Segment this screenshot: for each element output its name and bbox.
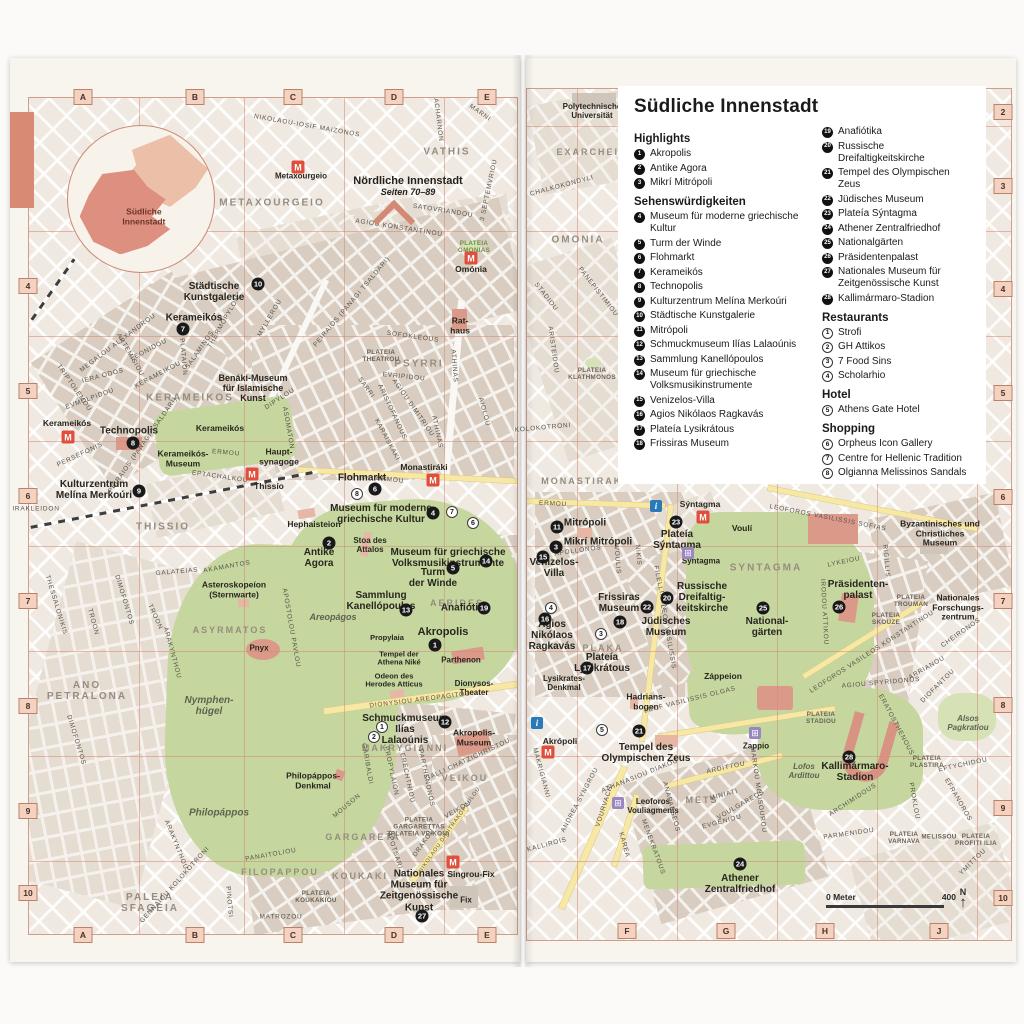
legend-item-label: Athener Zentralfriedhof: [838, 223, 940, 235]
legend-item-marker: 19: [822, 127, 833, 138]
legend-section-header: Shopping: [822, 423, 970, 435]
legend-item-marker: 2: [822, 342, 833, 353]
legend-item-label: Kallimármaro-Stadion: [838, 293, 934, 305]
legend-item-label: Plateía Lysikrátous: [650, 424, 734, 436]
legend-column-2: 19Anafiótika20Russische Dreifaltigkeitsk…: [822, 126, 970, 482]
suburban-rail-icon: ⊞: [682, 547, 694, 559]
metro-icon: M: [697, 511, 710, 524]
legend-item-marker: 6: [822, 439, 833, 450]
map-poi-label: Kerameikós: [43, 419, 91, 429]
map-poi-label: Singrou-Fix: [447, 870, 494, 880]
legend-item: 17Plateía Lysikrátous: [634, 424, 810, 436]
legend-item-label: Scholarhio: [838, 370, 885, 382]
metro-icon: M: [427, 474, 440, 487]
map-poi-label: Polytechnische Universität: [563, 103, 622, 121]
legend-section-header: Hotel: [822, 389, 970, 401]
sight-marker: 23: [670, 516, 683, 529]
map-poi-label: Fix: [460, 897, 472, 906]
map-poi-label: Voulí: [732, 524, 752, 534]
map-area-label: METAXOURGEIO: [219, 197, 324, 208]
legend-item: 12Schmuckmuseum Ilías Lalaoúnis: [634, 339, 810, 351]
grid-chip: 10: [994, 890, 1013, 906]
sight-marker: 8: [127, 437, 140, 450]
sight-marker: 14: [480, 555, 493, 568]
grid-chip: 6: [19, 488, 38, 504]
grid-chip: 7: [19, 593, 38, 609]
legend-item: 21Tempel des Olympischen Zeus: [822, 167, 970, 191]
legend-item-label: Schmuckmuseum Ilías Lalaoúnis: [650, 339, 796, 351]
map-poi-label: Byzantinisches und Christliches Museum: [898, 520, 982, 549]
map-area-label: MONASTIRAKI: [541, 476, 627, 486]
map-poi-label: Mitrópoli: [564, 517, 606, 528]
map-poi-label: Pnyx: [249, 645, 268, 654]
grid-chip: 9: [19, 803, 38, 819]
map-poi-label: Antike Agora: [304, 547, 335, 569]
legend-item-label: Nationalgärten: [838, 237, 903, 249]
legend-item: 7Centre for Hellenic Tradition: [822, 453, 970, 465]
map-plaza-label: PLATEIA PROFITI ILIA: [955, 833, 997, 847]
legend-item-label: Mikrí Mitrópoli: [650, 177, 712, 189]
venue-marker: 2: [368, 731, 380, 743]
map-poi-label: Akropolis- Museum: [453, 728, 495, 747]
legend-item-label: Orpheus Icon Gallery: [838, 438, 933, 450]
legend-column-1: Highlights1Akropolis2Antike Agora3Mikrí …: [634, 126, 810, 482]
grid-chip: 8: [994, 697, 1013, 713]
sight-marker: 28: [843, 751, 856, 764]
legend-item: 18Frissiras Museum: [634, 438, 810, 450]
legend-item-marker: 25: [822, 238, 833, 249]
legend-item-label: Kerameikós: [650, 267, 703, 279]
map-area-label: SYNTAGMA: [730, 562, 802, 573]
legend-item-marker: 13: [634, 355, 645, 366]
grid-chip: D: [385, 89, 404, 105]
sight-marker: 7: [177, 323, 190, 336]
sight-marker: 4: [427, 507, 440, 520]
legend-item-label: 7 Food Sins: [838, 356, 891, 368]
map-poi-label: Kallimármaro- Stadion: [821, 761, 888, 783]
sight-marker: 24: [734, 858, 747, 871]
grid-chip: E: [478, 927, 497, 943]
map-poi-label: Philopáppos- Denkmal: [286, 771, 340, 790]
legend-item-label: Centre for Hellenic Tradition: [838, 453, 962, 465]
legend-item-marker: 3: [634, 178, 645, 189]
legend-item-marker: 7: [822, 454, 833, 465]
map-plaza-label: PLATEIA TROUMAN: [894, 594, 928, 608]
map-area-label: EXARCHEIA: [556, 147, 627, 157]
sight-marker: 1: [429, 639, 442, 652]
legend-item-marker: 6: [634, 253, 645, 264]
map-poi-label: National- gärten: [746, 616, 789, 638]
scale-bar-line: [826, 905, 944, 908]
grid-chip: 9: [994, 800, 1013, 816]
inset-locator: Südliche Innenstadt: [67, 125, 215, 273]
north-page-title: Nördliche Innenstadt: [353, 175, 462, 187]
suburban-rail-icon: ⊞: [749, 727, 761, 739]
north-arrow-icon: ↑: [959, 897, 967, 909]
legend-item-marker: 5: [634, 239, 645, 250]
grid-chip: D: [385, 927, 404, 943]
legend-item-label: Plateía Sýntagma: [838, 208, 917, 220]
sight-marker: 22: [641, 601, 654, 614]
legend-item-label: Tempel des Olympischen Zeus: [838, 167, 970, 191]
map-area-label: PSYRRI: [394, 358, 443, 369]
inset-label: Südliche Innenstadt: [122, 206, 165, 227]
legend-item: 37 Food Sins: [822, 356, 970, 368]
sight-marker: 5: [447, 562, 460, 575]
grid-chip: 5: [994, 385, 1013, 401]
venue-marker: 4: [545, 602, 557, 614]
venue-marker: 6: [467, 517, 479, 529]
legend-item-label: Sammlung Kanellópoulos: [650, 354, 763, 366]
legend-item-label: Antike Agora: [650, 163, 707, 175]
venue-marker: 7: [446, 506, 458, 518]
grid-chip: F: [618, 923, 637, 939]
map-plaza-label: PLATEIA GARGARETTAS (PLATEIA VEIKOU): [388, 816, 449, 837]
map-plaza-label: PLATEIA THEATROU: [363, 349, 400, 363]
map-poi-label: Záppeion: [704, 672, 742, 682]
legend-item-marker: 1: [822, 328, 833, 339]
legend-item-marker: 20: [822, 142, 833, 153]
sight-marker: 6: [369, 483, 382, 496]
map-plaza-label: PLATEIA KOUKAKIOU: [295, 890, 337, 904]
legend-item: 9Kulturzentrum Melína Merkoúri: [634, 296, 810, 308]
legend-panel: Südliche Innenstadt Highlights1Akropolis…: [618, 86, 986, 484]
sight-marker: 18: [614, 616, 627, 629]
legend-item-label: Anafiótika: [838, 126, 882, 138]
legend-item: 7Kerameikós: [634, 267, 810, 279]
map-terrain-label: Alsos Pagkratiou: [947, 715, 988, 733]
legend-item-label: Frissiras Museum: [650, 438, 729, 450]
grid-chip: 6: [994, 489, 1013, 505]
map-street-label: IRAKLEIDON: [12, 505, 59, 512]
sight-marker: 9: [133, 485, 146, 498]
map-area-label: VEIKOU: [442, 773, 489, 783]
legend-item-label: Strofi: [838, 327, 861, 339]
legend-item-marker: 3: [822, 357, 833, 368]
legend-item: 6Orpheus Icon Gallery: [822, 438, 970, 450]
legend-item-marker: 27: [822, 267, 833, 278]
map-poi-label: Haupt- synagoge: [259, 447, 299, 466]
legend-item: 15Venizelos-Villa: [634, 395, 810, 407]
legend-item: 3Mikrí Mitrópoli: [634, 177, 810, 189]
legend-item: 25Nationalgärten: [822, 237, 970, 249]
legend-item: 19Anafiótika: [822, 126, 970, 138]
north-page-pointer: Nördliche Innenstadt Seiten 70–89: [353, 175, 462, 197]
metro-icon: M: [542, 746, 555, 759]
map-poi-label: Metaxourgeio: [275, 173, 327, 182]
legend-item: 8Olgianna Melissinos Sandals: [822, 467, 970, 479]
venue-marker: 3: [595, 628, 607, 640]
map-poi-label: Russische Dreifaltig- keitskirche: [676, 581, 728, 615]
grid-chip: 8: [19, 698, 38, 714]
legend-item-label: Flohmarkt: [650, 252, 694, 264]
legend-item: 1Akropolis: [634, 148, 810, 160]
legend-item-marker: 2: [634, 164, 645, 175]
scale-zero: 0 Meter: [826, 892, 856, 902]
grid-chip: A: [74, 89, 93, 105]
map-plaza-label: PLATEIA SKOUZE: [872, 612, 901, 626]
map-poi-label: Lysikrates- Denkmal: [543, 675, 585, 693]
map-poi-label: Parthenon: [441, 657, 481, 666]
map-plaza-label: PLATEIA VARNAVA: [888, 831, 920, 845]
grid-chip: 5: [19, 383, 38, 399]
map-poi-label: Kerameikós: [196, 424, 244, 434]
map-plaza-label: PLATEIA STADIOU: [806, 711, 836, 725]
map-poi-label: Omónia: [455, 265, 487, 275]
grid-chip: E: [478, 89, 497, 105]
map-street-label: MATROZOU: [259, 913, 302, 920]
legend-item-marker: 15: [634, 396, 645, 407]
sight-marker: 20: [661, 592, 674, 605]
legend-item: 4Scholarhio: [822, 370, 970, 382]
legend-section-header: Highlights: [634, 133, 810, 145]
sight-marker: 19: [478, 602, 491, 615]
grid-chip: 3: [994, 178, 1013, 194]
legend-item-marker: 8: [822, 468, 833, 479]
sight-marker: 27: [416, 910, 429, 923]
metro-icon: M: [62, 431, 75, 444]
legend-item-marker: 11: [634, 326, 645, 337]
legend-item: 4Museum für moderne griechische Kultur: [634, 211, 810, 235]
legend-item-marker: 26: [822, 253, 833, 264]
legend-item: 13Sammlung Kanellópoulos: [634, 354, 810, 366]
map-poi-label: Monastiráki: [400, 463, 447, 473]
legend-item-marker: 4: [822, 371, 833, 382]
metro-icon: M: [246, 468, 259, 481]
legend-item: 2GH Attikos: [822, 341, 970, 353]
legend-item: 6Flohmarkt: [634, 252, 810, 264]
map-poi-label: Thissío: [254, 482, 284, 492]
legend-item-label: Turm der Winde: [650, 238, 721, 250]
map-poi-label: Museum für moderne griechische Kultur: [330, 503, 432, 525]
grid-chip: B: [186, 89, 205, 105]
grid-chip: 7: [994, 593, 1013, 609]
legend-item: 5Athens Gate Hotel: [822, 404, 970, 416]
legend-item-marker: 24: [822, 224, 833, 235]
legend-item-marker: 5: [822, 405, 833, 416]
legend-item-label: GH Attikos: [838, 341, 885, 353]
legend-item-marker: 7: [634, 268, 645, 279]
grid-chip: 10: [19, 885, 38, 901]
legend-item-label: Jüdisches Museum: [838, 194, 924, 206]
legend-item-label: Technopolis: [650, 281, 703, 293]
map-plaza-label: PLATEIA KLATHMONOS: [568, 367, 616, 381]
legend-item-marker: 21: [822, 168, 833, 179]
legend-item-label: Akropolis: [650, 148, 691, 160]
map-area-label: FILOPAPPOU: [241, 867, 319, 877]
map-poi-label: Athener Zentralfriedhof: [705, 873, 776, 895]
map-poi-label: Frissiras Museum: [598, 592, 640, 614]
grid-chip: C: [284, 927, 303, 943]
legend-item-label: Athens Gate Hotel: [838, 404, 920, 416]
metro-icon: M: [292, 161, 305, 174]
legend-item-marker: 22: [822, 195, 833, 206]
legend-item-marker: 16: [634, 410, 645, 421]
legend-section-header: Sehenswürdigkeiten: [634, 196, 810, 208]
legend-item-label: Mitrópoli: [650, 325, 688, 337]
legend-item: 8Technopolis: [634, 281, 810, 293]
legend-item-marker: 23: [822, 209, 833, 220]
map-poi-label: Hephaisteion: [287, 520, 340, 530]
sight-marker: 21: [633, 725, 646, 738]
map-poi-label: Rat- haus: [450, 316, 470, 335]
map-terrain-label: Nymphen- hügel: [185, 695, 234, 717]
legend-item: 20Russische Dreifaltigkeitskirche: [822, 141, 970, 165]
venue-marker: 5: [596, 724, 608, 736]
legend-item: 2Antike Agora: [634, 163, 810, 175]
sight-marker: 26: [833, 601, 846, 614]
legend-item-marker: 1: [634, 149, 645, 160]
grid-chip: B: [186, 927, 205, 943]
legend-item-label: Kulturzentrum Melína Merkoúri: [650, 296, 787, 308]
legend-item-label: Nationales Museum für Zeitgenössische Ku…: [838, 266, 970, 290]
legend-item-label: Museum für griechische Volksmusikinstrum…: [650, 368, 810, 392]
map-area-label: VATHIS: [423, 146, 470, 157]
grid-chip: C: [284, 89, 303, 105]
map-poi-label: Sýntagma: [680, 500, 721, 510]
metro-icon: M: [465, 252, 478, 265]
sight-marker: 2: [323, 537, 336, 550]
map-poi-label: Kerameikós: [166, 312, 223, 323]
map-plaza-label: MELISSOU: [921, 833, 956, 840]
grid-chip: G: [717, 923, 736, 939]
sight-marker: 16: [539, 613, 552, 626]
grid-chip: A: [74, 927, 93, 943]
map-poi-label: Präsidenten- palast: [828, 579, 889, 601]
sight-marker: 10: [252, 278, 265, 291]
suburban-rail-icon: ⊞: [612, 797, 624, 809]
legend-item-marker: 4: [634, 212, 645, 223]
map-poi-label: Asteroskopeíon (Sternwarte): [202, 580, 266, 599]
legend-item-marker: 17: [634, 425, 645, 436]
sight-marker: 11: [551, 521, 564, 534]
sight-marker: 15: [537, 551, 550, 564]
info-icon: i: [650, 500, 662, 512]
legend-item-label: Präsidentenpalast: [838, 252, 918, 264]
sight-marker: 25: [757, 602, 770, 615]
legend-item: 16Agios Nikólaos Ragkavás: [634, 409, 810, 421]
grid-chip: 4: [994, 281, 1013, 297]
map-area-label: OMONIA: [551, 234, 604, 245]
map-spread: VATHISMETAXOURGEIOKERAMEIKOSPSYRRITHISSI…: [0, 0, 1024, 1024]
north-indicator: N ↑: [959, 887, 967, 909]
legend-item-marker: 28: [822, 294, 833, 305]
scale-bar: 0 Meter 400: [826, 892, 956, 908]
legend-item-label: Venizelos-Villa: [650, 395, 715, 407]
legend-item: 10Städtische Kunstgalerie: [634, 310, 810, 322]
map-poi-label: Akropolis: [418, 626, 469, 638]
legend-item: 23Plateía Sýntagma: [822, 208, 970, 220]
legend-item: 11Mitrópoli: [634, 325, 810, 337]
legend-item-marker: 14: [634, 369, 645, 380]
legend-item: 24Athener Zentralfriedhof: [822, 223, 970, 235]
map-terrain-label: Philopáppos: [189, 807, 249, 818]
legend-item: 26Präsidentenpalast: [822, 252, 970, 264]
venue-marker: 1: [376, 721, 388, 733]
legend-item-marker: 10: [634, 311, 645, 322]
legend-item-label: Städtische Kunstgalerie: [650, 310, 755, 322]
legend-item: 22Jüdisches Museum: [822, 194, 970, 206]
legend-item: 5Turm der Winde: [634, 238, 810, 250]
info-icon: i: [531, 717, 543, 729]
legend-item-marker: 12: [634, 340, 645, 351]
legend-item-marker: 8: [634, 282, 645, 293]
legend-item: 28Kallimármaro-Stadion: [822, 293, 970, 305]
map-area-label: ASYRMATOS: [193, 625, 268, 635]
map-poi-label: Stoa des Attalos: [353, 537, 386, 555]
map-poi-label: Tempel der Athena Niké: [377, 651, 420, 668]
legend-section-header: Restaurants: [822, 312, 970, 324]
sight-marker: 17: [581, 662, 594, 675]
legend-item: 27Nationales Museum für Zeitgenössische …: [822, 266, 970, 290]
legend-item-label: Russische Dreifaltigkeitskirche: [838, 141, 970, 165]
map-street-label: ERMOU: [539, 500, 568, 509]
legend-item-label: Agios Nikólaos Ragkavás: [650, 409, 763, 421]
map-poi-label: Kerameikós- Museum: [157, 449, 208, 468]
map-poi-label: Propylaia: [370, 634, 404, 642]
sight-marker: 3: [550, 541, 563, 554]
legend-item: 14Museum für griechische Volksmusikinstr…: [634, 368, 810, 392]
legend-item-label: Museum für moderne griechische Kultur: [650, 211, 810, 235]
map-area-label: THISSIO: [136, 521, 190, 532]
grid-chip: 4: [19, 278, 38, 294]
legend-item-label: Olgianna Melissinos Sandals: [838, 467, 966, 479]
grid-chip: J: [930, 923, 949, 939]
map-terrain-label: Areopágos: [309, 612, 356, 622]
legend-item-marker: 18: [634, 439, 645, 450]
map-terrain-label: Lofos Ardittou: [788, 763, 819, 781]
map-poi-label: Agios Nikólaos Ragkavás: [529, 619, 576, 653]
venue-marker: 8: [351, 488, 363, 500]
sight-marker: 12: [439, 716, 452, 729]
metro-icon: M: [447, 856, 460, 869]
legend-item-marker: 9: [634, 297, 645, 308]
map-poi-label: Odeon des Herodes Atticus: [365, 673, 422, 690]
grid-chip: 2: [994, 104, 1013, 120]
sight-marker: 13: [400, 604, 413, 617]
page-tab: [10, 112, 34, 208]
legend-title: Südliche Innenstadt: [634, 96, 970, 118]
legend-item: 1Strofi: [822, 327, 970, 339]
map-area-label: ANO PETRALONA: [47, 680, 127, 702]
scale-max: 400: [942, 892, 956, 902]
grid-chip: H: [816, 923, 835, 939]
north-page-subtitle: Seiten 70–89: [353, 187, 462, 197]
